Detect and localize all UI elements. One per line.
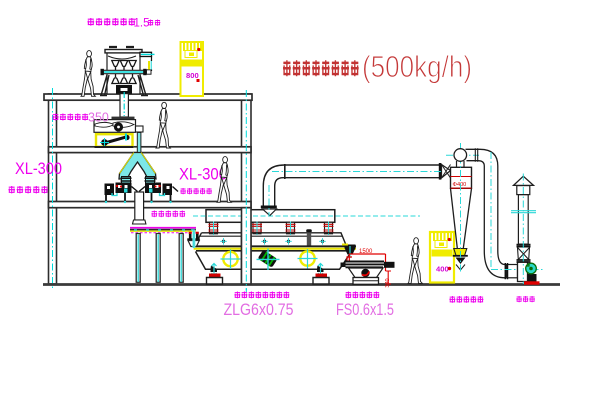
svg-text:FS0.6x1.5: FS0.6x1.5 <box>336 300 394 319</box>
svg-text:Φ400: Φ400 <box>453 182 467 188</box>
svg-text:400: 400 <box>436 265 449 274</box>
svg-text:1.5: 1.5 <box>134 18 150 30</box>
svg-text:1500: 1500 <box>359 249 373 255</box>
svg-text:XL-300: XL-300 <box>179 165 227 184</box>
svg-text:800: 800 <box>186 71 199 80</box>
svg-text:350: 350 <box>88 111 109 125</box>
svg-text:(500kg/h): (500kg/h) <box>362 49 472 84</box>
svg-text:340: 340 <box>385 278 391 287</box>
svg-text:XL-300: XL-300 <box>15 159 62 178</box>
svg-text:ZLG6x0.75: ZLG6x0.75 <box>224 300 294 319</box>
